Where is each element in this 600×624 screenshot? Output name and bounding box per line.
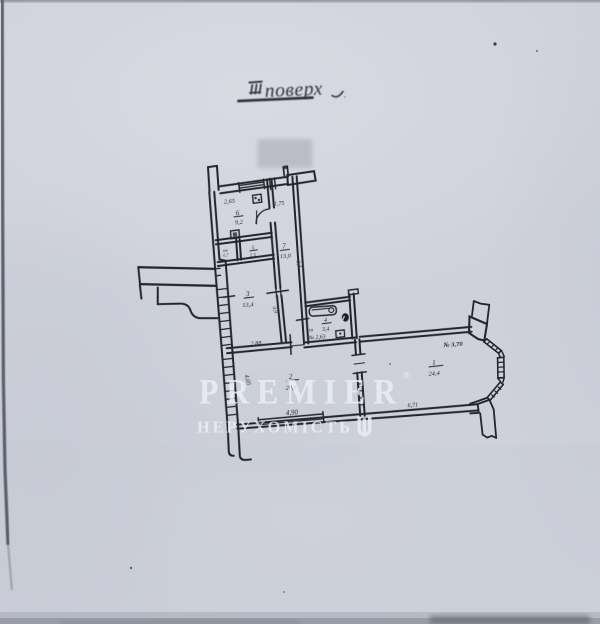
svg-text:поверх: поверх — [264, 78, 323, 102]
svg-text:1: 1 — [432, 359, 436, 367]
svg-text:НЕРУХОМІСТЬ: НЕРУХОМІСТЬ — [197, 418, 353, 437]
svg-text:1,5: 1,5 — [250, 253, 257, 258]
svg-text:6,71: 6,71 — [407, 403, 418, 410]
svg-text:®: ® — [403, 371, 410, 381]
svg-text:2,65: 2,65 — [224, 198, 235, 206]
svg-text:№ 2,63: № 2,63 — [307, 334, 326, 341]
svg-text:13,4: 13,4 — [242, 301, 255, 309]
svg-text:2,88: 2,88 — [250, 340, 262, 348]
svg-text:9,2: 9,2 — [235, 219, 244, 227]
svg-text:PREMIER: PREMIER — [199, 372, 404, 412]
svg-text:№ 3,70: № 3,70 — [442, 341, 463, 349]
svg-text:ш: ш — [309, 327, 313, 333]
svg-text:1,75: 1,75 — [274, 201, 285, 208]
svg-text:13,0: 13,0 — [280, 252, 292, 260]
svg-text:3,4: 3,4 — [321, 326, 330, 334]
svg-text:24,4: 24,4 — [428, 370, 441, 378]
